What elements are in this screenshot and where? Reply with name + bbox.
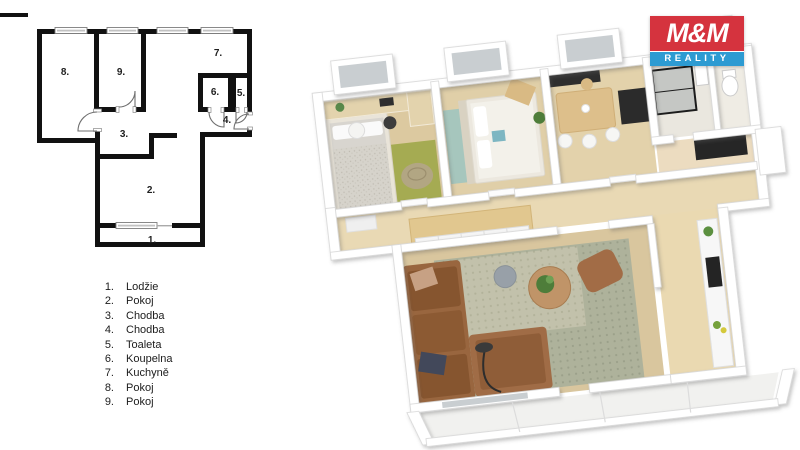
legend-number: 9. — [94, 395, 114, 409]
pillow — [418, 352, 447, 376]
room-label-2: 2. — [147, 185, 156, 196]
shoe-bench — [345, 215, 376, 232]
legend-label: Chodba — [126, 323, 165, 337]
floorplan-2d: 1. 2. 3. 4. 5. 6. 7. 8. 9. — [0, 13, 253, 247]
legend-label: Toaleta — [126, 338, 161, 352]
legend-item: 7.Kuchyně — [94, 366, 173, 380]
room-label-1: 1. — [148, 235, 157, 246]
agency-logo: M&M REALITY — [650, 16, 744, 66]
sink — [694, 65, 708, 86]
legend-label: Pokoj — [126, 395, 154, 409]
legend-number: 8. — [94, 381, 114, 395]
legend-number: 3. — [94, 309, 114, 323]
legend-label: Pokoj — [126, 381, 154, 395]
legend-number: 6. — [94, 352, 114, 366]
living-room-furniture — [402, 238, 645, 405]
legend-number: 1. — [94, 280, 114, 294]
legend-item: 5.Toaleta — [94, 338, 173, 352]
legend-number: 5. — [94, 338, 114, 352]
balcony-door-line — [157, 225, 172, 226]
legend-number: 7. — [94, 366, 114, 380]
floorplan-page: 1. 2. 3. 4. 5. 6. 7. 8. 9. 1.Lodžie 2.Po… — [0, 0, 800, 450]
legend-number: 4. — [94, 323, 114, 337]
legend-item: 9.Pokoj — [94, 395, 173, 409]
logo-reality: REALITY — [650, 51, 744, 66]
legend-label: Kuchyně — [126, 366, 169, 380]
legend-label: Chodba — [126, 309, 165, 323]
legend-item: 2.Pokoj — [94, 294, 173, 308]
bed-cushion — [492, 130, 506, 142]
legend-item: 3.Chodba — [94, 309, 173, 323]
legend-label: Koupelna — [126, 352, 173, 366]
legend-item: 4.Chodba — [94, 323, 173, 337]
legend-label: Pokoj — [126, 294, 154, 308]
legend-item: 6.Koupelna — [94, 352, 173, 366]
room-label-7: 7. — [214, 48, 223, 59]
legend: 1.Lodžie 2.Pokoj 3.Chodba 4.Chodba 5.Toa… — [94, 280, 173, 410]
legend-item: 1.Lodžie — [94, 280, 173, 294]
floorplan-3d — [309, 11, 800, 450]
window-bay — [444, 41, 509, 82]
adjacent-wall — [0, 13, 28, 17]
legend-number: 2. — [94, 294, 114, 308]
room-label-4: 4. — [223, 115, 232, 126]
room-label-6: 6. — [211, 87, 220, 98]
legend-item: 8.Pokoj — [94, 381, 173, 395]
window-bay — [331, 54, 396, 95]
logo-mm: M&M — [650, 16, 744, 51]
laptop-icon — [379, 97, 394, 107]
legend-label: Lodžie — [126, 280, 158, 294]
bedroom-8-furniture — [323, 90, 443, 215]
room-label-8: 8. — [61, 67, 70, 78]
bed-double — [458, 92, 545, 184]
room-label-3: 3. — [120, 129, 129, 140]
room-label-9: 9. — [117, 67, 126, 78]
room-label-5: 5. — [237, 88, 246, 99]
table-decor — [581, 104, 590, 113]
window-bay — [557, 28, 622, 69]
walls-2d — [37, 29, 252, 247]
